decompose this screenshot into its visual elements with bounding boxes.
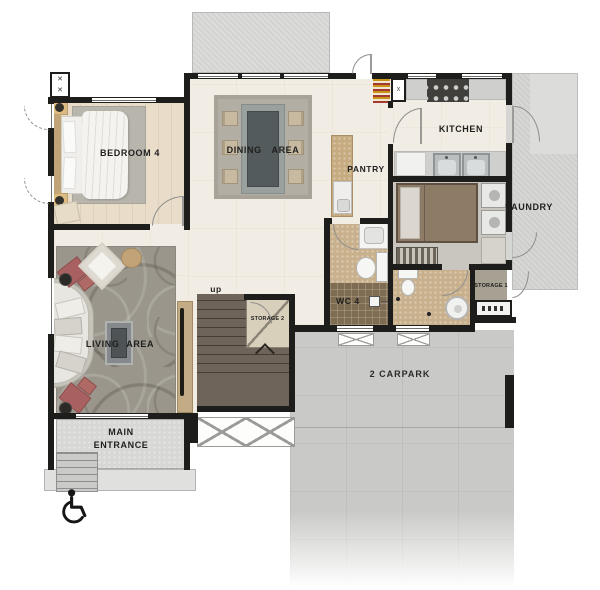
wall [244, 294, 295, 300]
window [242, 74, 280, 78]
room-label-bedroom4: BEDROOM 4 [88, 148, 172, 158]
vent-grille [397, 333, 430, 346]
wall [184, 73, 190, 230]
fridge-inner [337, 199, 350, 212]
shaft-box: ✕✕ [50, 72, 70, 98]
room-label-entrance-line1: MAIN [66, 427, 176, 437]
room-label-wc4: WC 4 [328, 296, 368, 306]
entry-slider [76, 414, 148, 418]
window-swing-arc [24, 178, 49, 204]
window [284, 74, 328, 78]
wall [190, 413, 198, 443]
washer-door [489, 217, 500, 228]
floor-drain-dot [396, 297, 400, 301]
room-label-entrance-line2: ENTRANCE [66, 440, 176, 450]
sink-basin [438, 160, 456, 175]
wall [48, 418, 54, 470]
cabinet-unit: x [391, 78, 406, 102]
storage1-vent [475, 300, 512, 317]
window [48, 278, 54, 334]
utility-bed-pillow [400, 187, 420, 239]
wall [470, 317, 516, 323]
side-table [121, 248, 142, 268]
hatched-deck [197, 417, 295, 447]
room-label-living: LIVING AREA [70, 339, 170, 349]
tv-screen [180, 308, 184, 396]
washing-machine [481, 210, 506, 235]
stove [427, 79, 469, 102]
wheelchair-accessible-icon [58, 488, 90, 524]
sofa-cushion [53, 317, 82, 336]
window [462, 74, 502, 78]
kitchen-sink [433, 153, 461, 178]
terrace-area [192, 12, 330, 73]
window [396, 326, 429, 331]
window-swing-arc [24, 106, 49, 130]
wall [324, 218, 330, 332]
window [198, 74, 238, 78]
door-swing-arc [352, 54, 371, 74]
vent-slats [482, 306, 504, 311]
bed-pillow [62, 157, 77, 190]
spice-shelf [373, 79, 390, 103]
entrance-steps [56, 452, 98, 492]
wc4-vanity [359, 221, 388, 249]
toilet-bowl [401, 279, 415, 296]
wc4-sprayer-box [369, 296, 380, 307]
faucet [445, 156, 448, 159]
floor-lamp [59, 273, 72, 286]
vanity-basin [364, 227, 384, 244]
room-label-dining: DINING AREA [214, 145, 312, 155]
door-leaf [182, 196, 184, 226]
faucet [474, 156, 477, 159]
window [408, 74, 436, 78]
wall [197, 406, 295, 412]
wall [289, 294, 295, 412]
shower-drain [445, 296, 469, 320]
drain-center [454, 305, 462, 313]
wall [392, 176, 512, 182]
room-label-storage1: STORAGE 1 [471, 283, 511, 289]
wall [505, 375, 514, 428]
room-label-kitchen: KITCHEN [420, 124, 502, 134]
utility-cabinet [481, 237, 506, 264]
driveway-line [290, 427, 514, 428]
floor-drain-dot [427, 312, 431, 316]
room-label-pantry: PANTRY [330, 164, 402, 174]
toilet [376, 252, 388, 282]
door-swing-arc [512, 271, 529, 298]
room-label-storage2: STORAGE 2 [246, 316, 289, 322]
dining-chair [288, 111, 304, 126]
washer-door [489, 190, 500, 201]
stairs-up-label: up [202, 284, 230, 294]
wall [388, 223, 393, 332]
room-label-laundry: LAUNDRY [498, 202, 560, 212]
utility-bed-fold [424, 185, 425, 241]
toilet-bowl [356, 257, 376, 279]
lamp [55, 103, 64, 112]
dining-chair [222, 169, 238, 184]
sink-basin [467, 160, 485, 175]
floor-plan: x [0, 0, 600, 590]
laundry-roof [530, 74, 577, 154]
dining-chair [288, 169, 304, 184]
wc4-sprayer-line [381, 301, 388, 302]
wall [295, 325, 475, 332]
toilet-tank [398, 269, 418, 279]
pantry-fridge [333, 181, 352, 214]
window [92, 98, 156, 102]
bed-pillow [62, 121, 77, 154]
room-label-carpark: 2 CARPARK [348, 369, 452, 379]
dining-chair [222, 111, 238, 126]
utility-bed [396, 183, 478, 243]
kitchen-sink [462, 153, 490, 178]
window [337, 326, 373, 331]
vent-grille [338, 333, 374, 346]
